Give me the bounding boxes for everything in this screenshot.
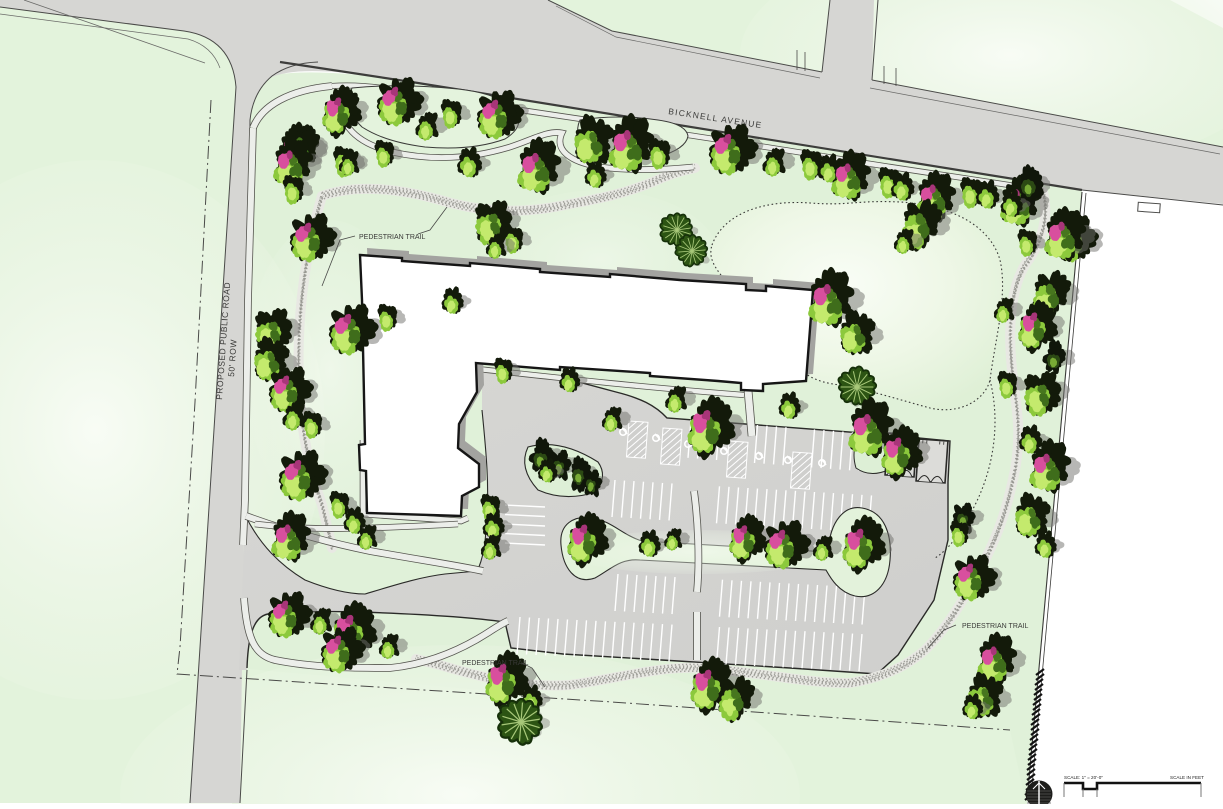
svg-text:SCALE IN FEET: SCALE IN FEET <box>1170 775 1204 780</box>
svg-text:PEDESTRIAN TRAIL: PEDESTRIAN TRAIL <box>359 234 425 241</box>
svg-text:PEDESTRIAN TRAIL: PEDESTRIAN TRAIL <box>462 660 528 667</box>
svg-text:SCALE: 1″ = 20’-0″: SCALE: 1″ = 20’-0″ <box>1064 775 1103 780</box>
svg-text:PEDESTRIAN TRAIL: PEDESTRIAN TRAIL <box>962 623 1028 630</box>
